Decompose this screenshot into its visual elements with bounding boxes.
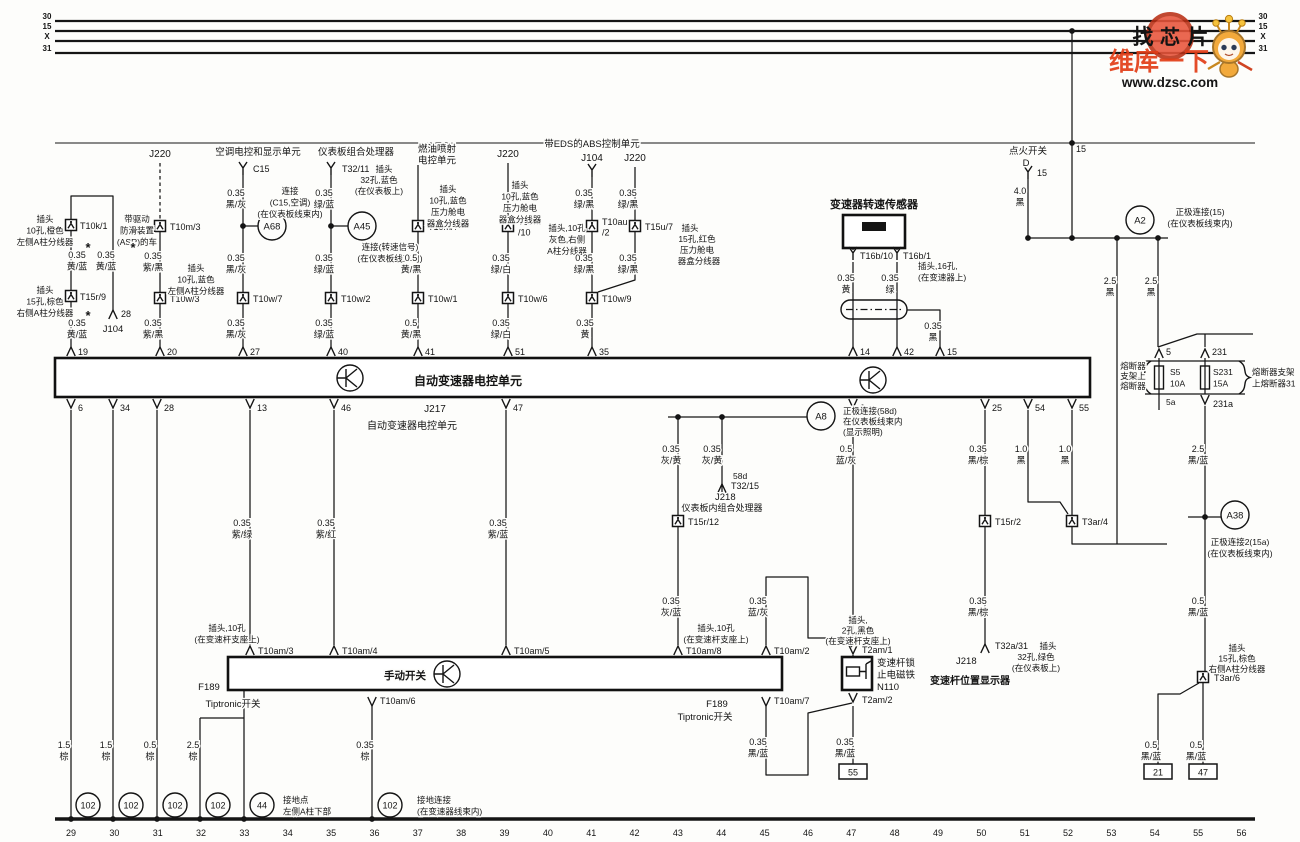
terminal-label: 25 — [992, 403, 1002, 413]
terminal-pin-icon — [588, 347, 596, 356]
terminal-pin-icon — [156, 347, 164, 356]
grid-number: 48 — [890, 828, 900, 838]
connection-node-label: A38 — [1227, 511, 1244, 522]
label: 30 — [1259, 12, 1268, 21]
label: 0.35棕 — [356, 740, 374, 762]
terminal-pin-icon — [849, 347, 857, 356]
connector-mark-dot — [159, 294, 161, 296]
label: 插头,10孔(在变速杆支座上) — [683, 623, 748, 645]
terminal-pin-icon — [762, 646, 770, 655]
label: 0.35黑/蓝 — [748, 737, 769, 759]
terminal-pin-icon — [330, 646, 338, 655]
label: 0.35绿/黑 — [618, 188, 639, 210]
label: 燃油喷射电控单元 — [418, 143, 457, 167]
label: 0.35黄 — [837, 273, 855, 295]
terminal-label: 19 — [78, 347, 88, 357]
label: 0.35灰/黄 — [702, 444, 723, 466]
label: 0.35黑 — [924, 321, 942, 343]
terminal-pin-icon — [504, 347, 512, 356]
terminal-label: 14 — [860, 347, 870, 357]
label: 插头10孔,蓝色左侧A柱分线器 — [168, 263, 225, 296]
grid-number: 55 — [1193, 828, 1203, 838]
label: 15 — [1076, 144, 1086, 154]
terminal-pin-icon — [502, 646, 510, 655]
label: 0.35绿/黑 — [574, 253, 595, 275]
stamp-left-char: 找 — [1133, 26, 1154, 49]
label: 手动开关 — [384, 669, 426, 682]
terminal-pin-icon — [414, 347, 422, 356]
reference-box-label: 21 — [1153, 768, 1163, 778]
label: 熔断器支架上熔断器 — [1120, 361, 1146, 391]
wiring-diagram: T10k/1T15r/9T10m/3T10w/3T10w/7T10w/2T10m… — [0, 0, 1300, 842]
connector-mark-dot — [417, 222, 419, 224]
label: 1.0黑 — [1015, 444, 1028, 466]
connector-mark-dot — [159, 222, 161, 224]
terminal-label: 231a — [1213, 399, 1233, 409]
label: F189 — [706, 699, 728, 710]
reference-box-label: 47 — [1198, 768, 1208, 778]
ground-point-label: 44 — [257, 801, 267, 811]
connector-label: T15r/2 — [995, 517, 1021, 527]
label: 0.35黑/棕 — [968, 596, 989, 618]
terminal-label: T10am/5 — [514, 646, 550, 656]
terminal-pin-icon — [849, 645, 857, 654]
terminal-label: 42 — [904, 347, 914, 357]
terminal-label: 28 — [164, 403, 174, 413]
grid-number: 56 — [1236, 828, 1246, 838]
connector-label: T10k/1 — [80, 221, 108, 231]
label: 插头10孔,蓝色压力舱电器盒分线器 — [427, 184, 470, 229]
terminal-label: T2am/1 — [862, 645, 893, 655]
label: 插头,2孔,黑色(在变速杆支座上) — [825, 615, 890, 646]
label: 0.35紫/绿 — [232, 518, 253, 540]
label: 2.5黑 — [1104, 276, 1117, 298]
mascot-icon — [1208, 15, 1252, 77]
label: 变速杆位置显示器 — [930, 674, 1011, 687]
junction-dot — [1069, 235, 1075, 241]
terminal-label: T32/11 — [342, 164, 369, 174]
label: J104 — [103, 324, 124, 335]
label: 2.5黑 — [1145, 276, 1158, 298]
grid-number: 42 — [630, 828, 640, 838]
connector-label: T10w/9 — [602, 294, 632, 304]
label: 0.35黑/灰 — [226, 188, 247, 210]
terminal-label: 15 — [947, 347, 957, 357]
label: 0.35绿/白 — [491, 253, 512, 275]
connector-mark-dot — [70, 221, 72, 223]
terminal-label: T10am/3 — [258, 646, 294, 656]
terminal-pin-icon — [1201, 349, 1209, 358]
connection-node-label: A45 — [354, 222, 371, 233]
label: 15 — [43, 22, 52, 31]
label: 32孔,蓝色 — [360, 175, 398, 185]
label: 4.0黑 — [1014, 186, 1027, 208]
label: 插头 — [375, 164, 393, 174]
label: (在仪表板上) — [355, 186, 403, 196]
terminal-pin-icon — [1201, 395, 1209, 404]
terminal-pin-icon — [1068, 399, 1076, 408]
terminal-label: 6 — [78, 403, 83, 413]
label: X — [1260, 32, 1266, 41]
connector-label: T10au/2 — [602, 217, 628, 238]
terminal-label: T10am/4 — [342, 646, 378, 656]
ground-point-label: 102 — [123, 801, 138, 811]
connector-mark-dot — [1071, 517, 1073, 519]
label: J220 — [497, 149, 519, 160]
terminal-pin-icon — [330, 399, 338, 408]
label: 插头,10孔灰色,右侧A柱分线器 — [547, 223, 587, 256]
label: 空调电控和显示单元 — [215, 146, 301, 158]
connector-mark-dot — [591, 294, 593, 296]
terminal-pin-icon — [368, 697, 376, 706]
label: S510A — [1170, 367, 1185, 389]
label: J220 — [624, 153, 646, 164]
label: 仪表板内组合处理器 — [681, 502, 762, 513]
ground-point-label: 102 — [80, 801, 95, 811]
label: 0.35绿/黑 — [618, 253, 639, 275]
grid-number: 29 — [66, 828, 76, 838]
junction-dot — [241, 816, 247, 822]
label: 0.35蓝/灰 — [748, 596, 769, 618]
connection-node-label: A2 — [1134, 216, 1146, 227]
terminal-pin-icon — [67, 347, 75, 356]
grid-number: 46 — [803, 828, 813, 838]
junction-dot — [68, 816, 74, 822]
connection-node-label: A8 — [815, 412, 827, 423]
stamp-right-char: 片 — [1188, 26, 1209, 49]
connector-label: T10w/1 — [428, 294, 458, 304]
junction-dot — [240, 223, 246, 229]
terminal-pin-icon — [327, 162, 335, 175]
label: 2.5棕 — [187, 740, 200, 762]
terminal-label: T32a/31 — [995, 641, 1028, 651]
label: * — [85, 240, 91, 255]
connection-node-label: A68 — [264, 222, 281, 233]
label: D — [1023, 158, 1030, 169]
terminal-label: 46 — [341, 403, 351, 413]
label: 0.35黄/蓝 — [67, 318, 88, 340]
label: 1.0黑 — [1059, 444, 1072, 466]
terminal-label: T10am/6 — [380, 696, 416, 706]
grid-number: 34 — [283, 828, 293, 838]
junction-dot — [328, 223, 334, 229]
brand-url: www.dzsc.com — [1121, 75, 1218, 90]
terminal-label: 41 — [425, 347, 435, 357]
terminal-label: 5 — [1166, 347, 1171, 357]
sensor-element — [862, 222, 886, 231]
label: 插头10孔,蓝色压力舱电器盒分线器 — [499, 180, 542, 225]
label: J104 — [581, 153, 603, 164]
label: 器盒分线器 — [678, 256, 721, 266]
junction-dot — [719, 414, 725, 420]
grid-number: 40 — [543, 828, 553, 838]
connector-mark-dot — [984, 517, 986, 519]
label: 0.35黄/蓝 — [96, 250, 117, 272]
label: 5a — [1166, 397, 1176, 407]
terminal-label: 51 — [515, 347, 525, 357]
junction-dot — [369, 816, 375, 822]
label: 插头,16孔,(在变速器上) — [918, 261, 966, 283]
label: 0.35绿/蓝 — [314, 188, 335, 210]
connector-label: T10w/7 — [253, 294, 283, 304]
terminal-label: 54 — [1035, 403, 1045, 413]
grid-number: 32 — [196, 828, 206, 838]
label: 0.35黄 — [576, 318, 594, 340]
terminal-label: T10am/8 — [686, 646, 722, 656]
connector-mark-dot — [677, 517, 679, 519]
label: 正极连接2(15a)(在仪表板线束内) — [1207, 537, 1272, 559]
terminal-label: 231 — [1212, 347, 1227, 357]
reference-box-label: 55 — [848, 768, 858, 778]
stamp-center-char: 芯 — [1160, 25, 1180, 49]
wire — [1072, 527, 1167, 544]
label: 0.35黑/棕 — [968, 444, 989, 466]
label: 带EDS的ABS控制单元 — [544, 138, 640, 150]
terminal-pin-icon — [1155, 349, 1163, 358]
terminal-pin-icon — [327, 347, 335, 356]
grid-number: 54 — [1150, 828, 1160, 838]
label: J220 — [149, 149, 171, 160]
junction-dot — [1069, 28, 1075, 34]
terminal-label: 15 — [1037, 168, 1047, 178]
terminal-pin-icon — [936, 347, 944, 356]
connector-mark-dot — [330, 294, 332, 296]
label: 0.35紫/黑 — [143, 251, 164, 273]
grid-number: 53 — [1106, 828, 1116, 838]
label: (在仪表板上) — [1012, 663, 1060, 673]
terminal-pin-icon — [674, 646, 682, 655]
label: 0.35黑/灰 — [226, 318, 247, 340]
connector-label: T15r/12 — [688, 517, 719, 527]
sensor-box — [843, 215, 905, 248]
grid-number: 31 — [153, 828, 163, 838]
terminal-label: T16b/1 — [903, 251, 931, 261]
terminal-label: 35 — [599, 347, 609, 357]
label: 0.35黑/蓝 — [835, 737, 856, 759]
terminal-label: 28 — [121, 309, 131, 319]
connector-mark-dot — [634, 222, 636, 224]
terminal-pin-icon — [981, 399, 989, 408]
label: 1.5棕 — [58, 740, 71, 762]
grid-number: 52 — [1063, 828, 1073, 838]
terminal-pin-icon — [502, 399, 510, 408]
terminal-label: 47 — [513, 403, 523, 413]
terminal-label: 27 — [250, 347, 260, 357]
label: 15 — [1259, 22, 1268, 31]
junction-dot — [675, 414, 681, 420]
label: 0.35紫/蓝 — [488, 518, 509, 540]
terminal-label: 20 — [167, 347, 177, 357]
ground-point-label: 102 — [382, 801, 397, 811]
terminal-label: T10am/2 — [774, 646, 810, 656]
grid-number: 44 — [716, 828, 726, 838]
label: Tiptronic开关 — [677, 711, 733, 723]
terminal-pin-icon — [762, 697, 770, 706]
label: 31 — [1259, 44, 1268, 53]
junction-dot — [1202, 514, 1208, 520]
grid-number: 41 — [586, 828, 596, 838]
connector-mark-dot — [70, 292, 72, 294]
terminal-pin-icon — [893, 347, 901, 356]
terminal-label: T16b/10 — [860, 251, 893, 261]
label: T32/15 — [731, 481, 759, 491]
terminal-pin-icon — [246, 646, 254, 655]
label: 0.35灰/黄 — [661, 444, 682, 466]
label: 插头 — [681, 223, 699, 233]
terminal-label: T2am/2 — [862, 695, 893, 705]
label: 接地点左侧A柱下部 — [283, 795, 332, 817]
grid-number: 33 — [239, 828, 249, 838]
connector-mark-dot — [242, 294, 244, 296]
connector-mark-dot — [507, 294, 509, 296]
terminal-pin-icon — [849, 693, 857, 702]
junction-dot — [197, 816, 203, 822]
label: 0.35紫/黑 — [143, 318, 164, 340]
label: 自动变速器电控单元 — [414, 373, 522, 388]
label: 正极连接(15)(在仪表板线束内) — [1167, 207, 1232, 229]
ecu-band-J217 — [55, 358, 1090, 397]
terminal-pin-icon — [67, 399, 75, 408]
connector-label: T15u/7 — [645, 222, 673, 232]
terminal-pin-icon — [246, 399, 254, 408]
terminal-pin-icon — [109, 399, 117, 408]
terminal-pin-icon — [239, 347, 247, 356]
grid-number: 49 — [933, 828, 943, 838]
label: 插头15孔,棕色右侧A柱分线器 — [1209, 643, 1266, 674]
terminal-label: T10am/7 — [774, 696, 810, 706]
terminal-pin-icon — [153, 399, 161, 408]
label: 30 — [43, 12, 52, 21]
junction-dot — [1114, 235, 1120, 241]
label: 0.35绿/蓝 — [314, 318, 335, 340]
grid-number: 43 — [673, 828, 683, 838]
label: 插头 — [1039, 641, 1057, 651]
junction-dot — [1155, 235, 1161, 241]
grid-number: 30 — [109, 828, 119, 838]
label: S23115A — [1213, 367, 1233, 389]
label: 0.35黑/灰 — [226, 253, 247, 275]
label: 0.35紫/红 — [316, 518, 337, 540]
junction-dot — [110, 816, 116, 822]
label: 15孔,红色 — [678, 234, 716, 244]
connector-label: T10m/3 — [170, 222, 201, 232]
connector-label: T10w/6 — [518, 294, 548, 304]
label: X — [44, 32, 50, 41]
grid-number: 51 — [1020, 828, 1030, 838]
terminal-pin-icon — [588, 164, 596, 177]
label: 0.35绿/黑 — [574, 188, 595, 210]
label: 0.35黄/蓝 — [67, 250, 88, 272]
ground-point-label: 102 — [167, 801, 182, 811]
label: 58d — [733, 471, 747, 481]
label: 1.5棕 — [100, 740, 113, 762]
connector-label: T15r/9 — [80, 292, 106, 302]
grid-number: 50 — [976, 828, 986, 838]
label: 0.35绿/白 — [491, 318, 512, 340]
connector-mark-dot — [591, 222, 593, 224]
junction-dot — [1025, 235, 1031, 241]
brand-text: 维库一下 — [1109, 47, 1209, 76]
labels-layer: T10k/1T15r/9T10m/3T10w/3T10w/7T10w/2T10m… — [17, 12, 1296, 838]
ground-point-label: 102 — [210, 801, 225, 811]
label: J218 — [956, 656, 977, 667]
terminal-pin-icon — [239, 162, 247, 175]
terminal-pin-icon — [109, 310, 117, 319]
manual-switch-band-F189 — [228, 657, 782, 690]
grid-number: 45 — [760, 828, 770, 838]
terminal-label: 13 — [257, 403, 267, 413]
connector-mark-dot — [417, 294, 419, 296]
label: J217 — [424, 404, 446, 415]
terminal-label: C15 — [253, 164, 270, 174]
label: 0.35绿/蓝 — [314, 253, 335, 275]
label: 31 — [43, 44, 52, 53]
connector-mark-dot — [1202, 673, 1204, 675]
junction-dot — [154, 816, 160, 822]
label: 自动变速器电控单元 — [367, 419, 457, 432]
label: 带驱动防滑装置(ASR)的车 — [117, 214, 157, 247]
wiring-diagram-page: T10k/1T15r/9T10m/3T10w/3T10w/7T10w/2T10m… — [0, 0, 1300, 842]
label: 32孔,绿色 — [1017, 652, 1055, 662]
grid-number: 39 — [499, 828, 509, 838]
label: 正极连接(58d)在仪表板线束内(显示照明) — [843, 406, 903, 437]
grid-number: 36 — [369, 828, 379, 838]
label: 0.5棕 — [144, 740, 157, 762]
connector-label: T3ar/4 — [1082, 517, 1108, 527]
label: 0.35灰/蓝 — [661, 596, 682, 618]
fuse-brace-right-icon — [1239, 361, 1250, 394]
terminal-label: 40 — [338, 347, 348, 357]
grid-number: 47 — [846, 828, 856, 838]
terminal-label: 34 — [120, 403, 130, 413]
terminal-pin-icon — [1024, 399, 1032, 408]
label: 压力舱电 — [680, 245, 715, 255]
connector-label: T10w/2 — [341, 294, 371, 304]
connector-label: T3ar/6 — [1214, 673, 1240, 683]
label: 熔断器支架上熔断器31 — [1252, 367, 1296, 389]
grid-number: 38 — [456, 828, 466, 838]
label: Tiptronic开关 — [205, 698, 261, 710]
label: 接地连接(在变速器线束内) — [417, 795, 482, 817]
label: 仪表板组合处理器 — [318, 146, 395, 158]
label: J218 — [715, 492, 736, 503]
label: 变速杆锁止电磁铁N110 — [877, 657, 916, 693]
terminal-pin-icon — [981, 644, 989, 653]
label: * — [85, 308, 91, 323]
label: F189 — [198, 682, 220, 693]
label: 点火开关 — [1009, 145, 1048, 157]
junction-dot — [1069, 140, 1075, 146]
label: 变速器转速传感器 — [830, 197, 919, 211]
grid-number: 35 — [326, 828, 336, 838]
grid-number: 37 — [413, 828, 423, 838]
terminal-label: 55 — [1079, 403, 1089, 413]
label: 0.35绿 — [881, 273, 899, 295]
watermark-logo: 找 芯 片 维库一下 www.dzsc.com — [1109, 14, 1252, 90]
